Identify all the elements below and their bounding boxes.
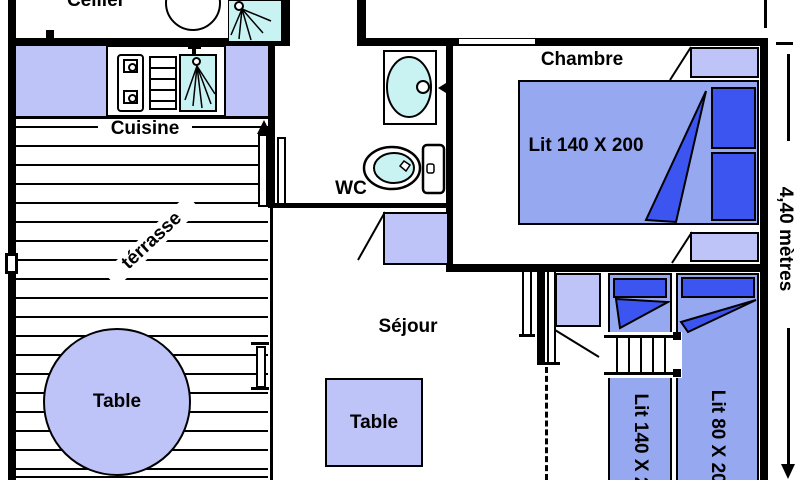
- outer-wall-left: [8, 0, 16, 480]
- sliding-door-leaf: [256, 346, 266, 388]
- pillow: [711, 87, 756, 149]
- wc-cupboard: [383, 212, 449, 265]
- bunkroom-cupboard: [555, 273, 601, 327]
- door-track-tick: [544, 362, 560, 365]
- chambre-label: Chambre: [534, 50, 630, 70]
- terrace-right-edge: [270, 206, 273, 480]
- door-swing-line: [669, 229, 695, 265]
- door-swing-line: [355, 210, 387, 264]
- faucet-stem: [192, 46, 196, 54]
- cuisine-label: Cuisine: [98, 119, 192, 139]
- washbasin-icon: [383, 50, 437, 125]
- blanket-fold-icon: [608, 273, 672, 333]
- ladder-icon: [604, 332, 682, 378]
- wc-label: WC: [330, 179, 372, 199]
- top-wall: [357, 38, 768, 46]
- bathroom-bottom-wall: [275, 203, 453, 208]
- door-track-tick: [251, 342, 269, 345]
- floor-plan: Cellier: [0, 0, 796, 480]
- chambre-bottom-wall: [446, 264, 768, 272]
- dimension-label: 4,40 mètres: [774, 180, 796, 298]
- hob-icon: [117, 54, 144, 112]
- toilet-icon: [360, 143, 448, 197]
- blanket-fold-icon: [676, 273, 759, 338]
- sliding-door-leaf: [522, 270, 532, 336]
- round-table-label: Table: [93, 392, 141, 412]
- chambre-nightstand: [690, 232, 759, 262]
- cellier-label: Cellier: [56, 0, 136, 11]
- bed-80-label: Lit 80 X 200: [706, 372, 728, 480]
- dimension-line: [787, 54, 790, 141]
- square-table: Table: [325, 378, 423, 467]
- sliding-door-leaf: [277, 137, 286, 205]
- square-table-label: Table: [350, 413, 398, 433]
- dimension-line: [787, 328, 790, 464]
- door-swing-line: [667, 44, 693, 82]
- door-track-tick: [251, 387, 269, 390]
- cellier-appliance-circle: [165, 0, 221, 31]
- sliding-door-leaf: [258, 134, 268, 207]
- terrace-door-hinge: [5, 253, 18, 274]
- burner-icon: [123, 59, 138, 73]
- cellier-shower-stall: [228, 0, 282, 42]
- door-track-tick: [519, 334, 535, 337]
- dimension-tick: [776, 42, 793, 45]
- cellier-door-pivot: [46, 30, 54, 39]
- round-table: Table: [43, 328, 191, 476]
- double-bed-label: Lit 140 X 200: [524, 136, 648, 156]
- door-arrow-icon: [438, 83, 446, 93]
- kitchen-fixture-panel: [106, 45, 226, 117]
- door-arrow-icon: [257, 120, 271, 134]
- partition-wall: [537, 268, 545, 365]
- chambre-shelf: [690, 47, 759, 78]
- sejour-label: Séjour: [370, 317, 446, 337]
- draining-board-icon: [149, 56, 177, 110]
- terrace-decking-last-line: [16, 476, 268, 478]
- burner-icon: [123, 90, 138, 104]
- chambre-window: [458, 38, 536, 45]
- outer-wall-right: [760, 43, 768, 480]
- dimension-arrow-icon: [781, 464, 795, 479]
- shower-spray-icon: [181, 56, 219, 114]
- section-dashed-line: [545, 367, 548, 480]
- bed-140-label: Lit 140 X 200: [629, 376, 651, 480]
- pillow: [711, 152, 756, 221]
- door-swing-line: [552, 328, 602, 360]
- dimension-extension-line: [764, 0, 767, 28]
- shower-spray-icon: [229, 1, 283, 43]
- bunk-ladder: [604, 332, 682, 378]
- kitchen-shower-cell: [179, 54, 217, 112]
